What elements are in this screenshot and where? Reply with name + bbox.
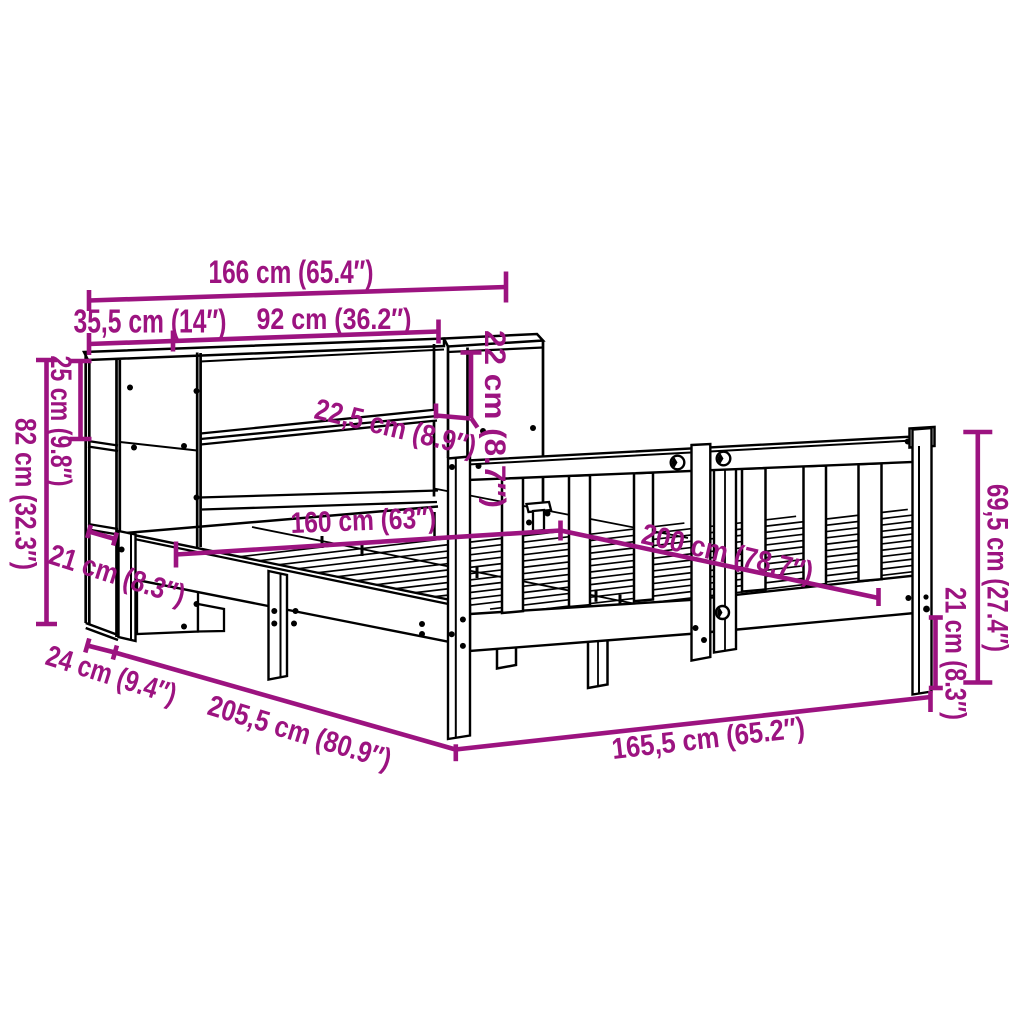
svg-text:160 cm (63″): 160 cm (63″)	[290, 501, 437, 540]
svg-text:35,5 cm (14″): 35,5 cm (14″)	[74, 303, 227, 340]
svg-text:92 cm (36.2″): 92 cm (36.2″)	[257, 303, 412, 336]
svg-text:166 cm (65.4″): 166 cm (65.4″)	[209, 254, 374, 290]
svg-text:22 cm (8.7″): 22 cm (8.7″)	[478, 330, 511, 508]
svg-text:25 cm (9.8″): 25 cm (9.8″)	[44, 356, 77, 487]
svg-text:21 cm (8.3″): 21 cm (8.3″)	[939, 587, 972, 720]
svg-text:69,5 cm (27.4″): 69,5 cm (27.4″)	[981, 484, 1014, 652]
svg-text:82 cm (32.3″): 82 cm (32.3″)	[9, 418, 42, 570]
